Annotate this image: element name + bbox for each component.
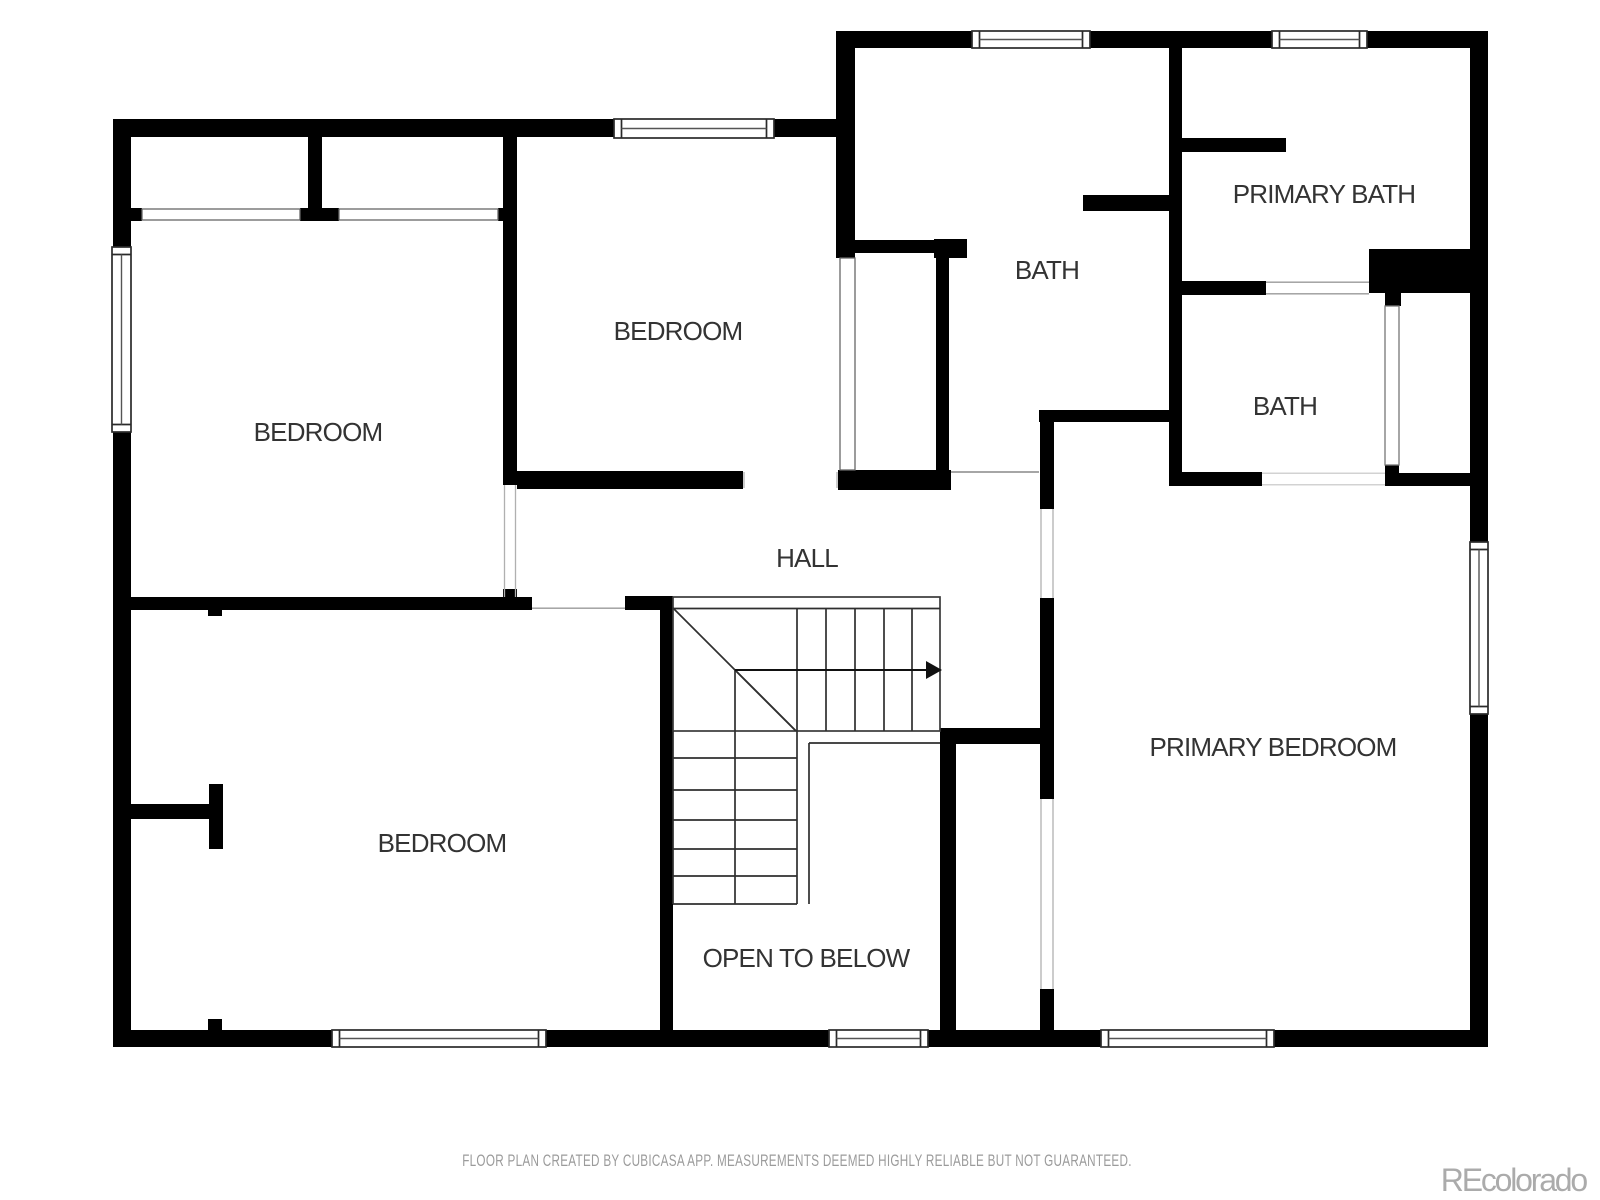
svg-text:REcolorado: REcolorado xyxy=(1441,1162,1588,1198)
svg-text:BEDROOM: BEDROOM xyxy=(378,828,507,858)
svg-text:PRIMARY BATH: PRIMARY BATH xyxy=(1233,179,1416,209)
svg-text:HALL: HALL xyxy=(776,543,838,573)
svg-text:FLOOR PLAN CREATED BY CUBICASA: FLOOR PLAN CREATED BY CUBICASA APP. MEAS… xyxy=(462,1152,1132,1170)
svg-text:PRIMARY BEDROOM: PRIMARY BEDROOM xyxy=(1149,732,1396,762)
svg-text:OPEN TO BELOW: OPEN TO BELOW xyxy=(703,943,911,973)
svg-text:BEDROOM: BEDROOM xyxy=(614,316,743,346)
svg-text:BATH: BATH xyxy=(1015,255,1079,285)
svg-text:BEDROOM: BEDROOM xyxy=(254,417,383,447)
svg-text:BATH: BATH xyxy=(1253,391,1317,421)
